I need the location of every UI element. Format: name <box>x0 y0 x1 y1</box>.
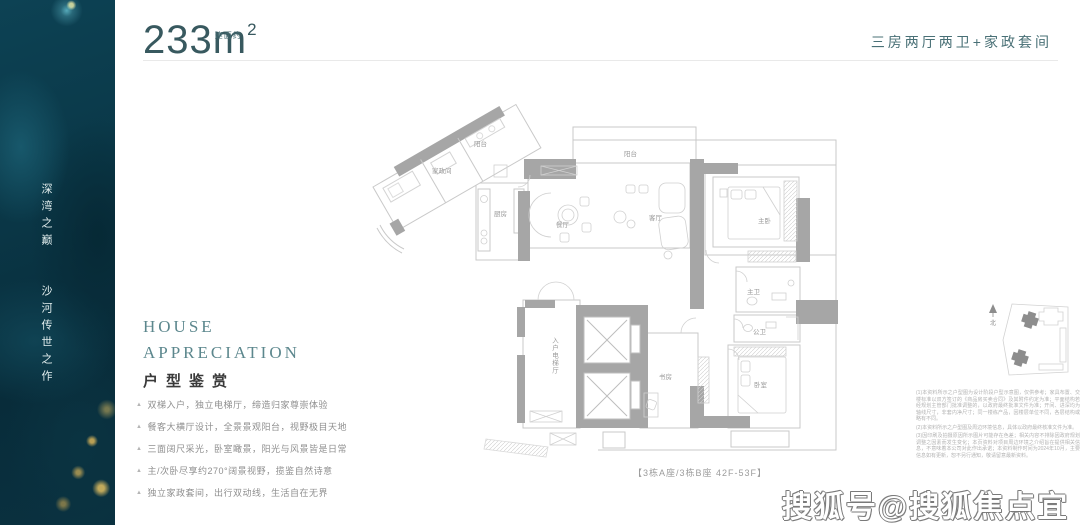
list-item: ▲主/次卧尽享约270°阔景视野，揽鉴自然诗意 <box>136 467 347 476</box>
sohu-watermark: 搜狐号@搜狐焦点宜春站 <box>782 482 1080 525</box>
vertical-slogan: 深湾之巅 沙河传世之作 <box>38 183 54 387</box>
disclaimer-paragraph-1: (1)本资料所示之户型图为设计阶段户型示意图，仅供参考；家具布置、交楼标准以双方… <box>916 390 1080 423</box>
room-label-public-bath: 公卫 <box>753 328 767 336</box>
selling-points-list: ▲双梯入户，独立电梯厅，缔造归家尊崇体验 ▲餐客大横厅设计，全景景观阳台，视野极… <box>136 401 347 511</box>
room-label-kitchen: 厨房 <box>494 209 507 218</box>
selling-point-text: 三面阔尺采光，卧室瞰景，阳光与风景皆是日常 <box>147 445 347 454</box>
list-item: ▲三面阔尺采光，卧室瞰景，阳光与风景皆是日常 <box>136 445 347 454</box>
disclaimer-paragraph-2: (2)本资料所示之户型图及周边环境信息，具体以政府最终核准文件为准。 <box>916 425 1080 432</box>
key-plan: 北 <box>982 298 1074 380</box>
selling-point-text: 主/次卧尽享约270°阔景视野，揽鉴自然诗意 <box>147 467 332 476</box>
triangle-bullet-icon: ▲ <box>136 489 142 498</box>
vertical-slogan-line2: 沙河传世之作 <box>40 285 52 387</box>
area-figure: 233建面约m2 <box>143 8 258 62</box>
page: 深湾之巅 沙河传世之作 233建面约m2 三房两厅两卫+家政套间 HOUSE A… <box>0 0 1080 525</box>
housekeeping-wing <box>368 98 543 235</box>
section-title-en-line1: HOUSE <box>143 314 300 340</box>
section-title-en-line2: APPRECIATION <box>143 340 300 366</box>
room-label-housekeeping: 家政间 <box>432 166 452 175</box>
list-item: ▲独立家政套间，出行双动线，生活自在无界 <box>136 489 347 498</box>
room-label-wing-balcony: 阳台 <box>474 139 487 148</box>
highlighted-towers <box>1010 310 1040 368</box>
area-superscript: 2 <box>247 20 257 39</box>
list-item: ▲双梯入户，独立电梯厅，缔造归家尊崇体验 <box>136 401 347 410</box>
room-label-dining: 餐厅 <box>556 220 570 229</box>
area-value: 233 <box>143 18 213 62</box>
triangle-bullet-icon: ▲ <box>136 423 142 432</box>
selling-point-text: 餐客大横厅设计，全景景观阳台，视野极目天地 <box>147 423 347 432</box>
triangle-bullet-icon: ▲ <box>136 467 142 476</box>
layout-subtitle: 三房两厅两卫+家政套间 <box>871 32 1052 52</box>
room-label-master-bedroom: 主卧 <box>758 216 772 225</box>
disclaimer-text: (1)本资料所示之户型图为设计阶段户型示意图，仅供参考；家具布置、交楼标准以双方… <box>916 390 1080 461</box>
north-label: 北 <box>990 319 996 327</box>
room-label-study: 书房 <box>659 372 672 381</box>
section-title-cn: 户型鉴赏 <box>143 370 235 391</box>
side-ocean-image: 深湾之巅 沙河传世之作 <box>0 0 115 525</box>
triangle-bullet-icon: ▲ <box>136 445 142 454</box>
vertical-slogan-line1: 深湾之巅 <box>40 183 52 251</box>
selling-point-text: 独立家政套间，出行双动线，生活自在无界 <box>147 489 328 498</box>
room-label-entry-hall: 入户电梯厅 <box>551 337 559 375</box>
selling-point-text: 双梯入户，独立电梯厅，缔造归家尊崇体验 <box>147 401 328 410</box>
list-item: ▲餐客大横厅设计，全景景观阳台，视野极目天地 <box>136 423 347 432</box>
area-prefix: 建面约 <box>215 14 242 58</box>
disclaimer-paragraph-3: (3)因印刷及拍摄原因所示图片可能存在色差；相关内容不排除因政府规划调整之因素而… <box>916 433 1080 459</box>
header-divider <box>143 60 1058 61</box>
triangle-bullet-icon: ▲ <box>136 401 142 410</box>
room-label-bedroom: 卧室 <box>754 380 768 389</box>
north-arrow-icon: 北 <box>989 304 997 327</box>
room-label-balcony: 阳台 <box>624 149 637 158</box>
plan-caption: 【3栋A座/3栋B座 42F-53F】 <box>560 466 840 479</box>
section-title-en: HOUSE APPRECIATION <box>143 314 300 366</box>
floor-plan: 家政间 阳台 厨房 餐厅 客厅 阳台 主卧 主卫 公卫 卧室 书房 入户电梯厅 <box>368 95 868 475</box>
room-label-living: 客厅 <box>649 213 663 222</box>
room-label-master-bath: 主卫 <box>747 287 761 296</box>
